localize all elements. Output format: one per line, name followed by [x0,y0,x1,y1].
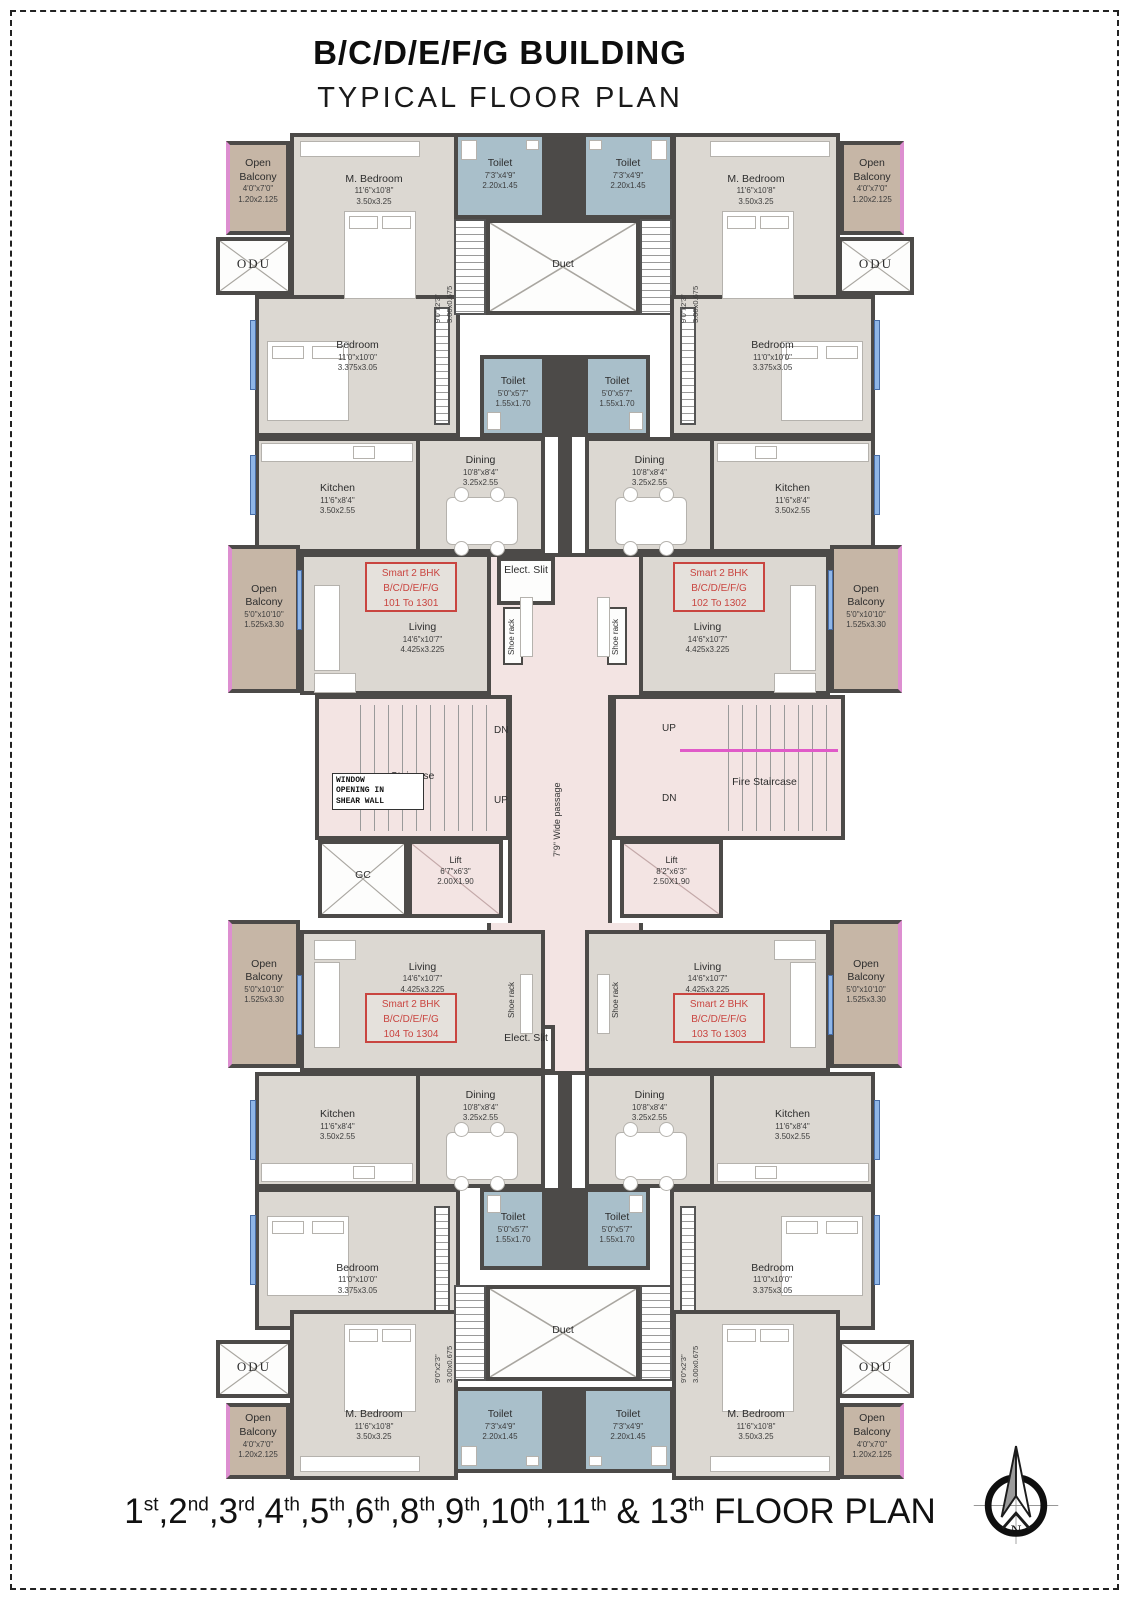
wall-spine [546,355,584,437]
dining-table [446,1132,518,1180]
room-toilet-small-top-left: Toilet5'0"x5'7"1.55x1.70 [480,355,546,437]
room-open-balcony-bottom-left: Open Balcony4'0"x7'0"1.20x2.125 [226,1403,290,1479]
corridor: 7'9" Wide passage [508,695,612,940]
room-open-balcony-mid-bottom-left: Open Balcony5'0"x10'10"1.525x3.30 [228,920,300,1068]
chair [623,541,638,556]
stair-treads [715,705,833,831]
room-gc: GC [318,840,408,918]
hob [755,446,777,459]
unit-label-104: Smart 2 BHKB/C/D/E/F/G104 To 1304 [365,993,457,1043]
window [874,1100,880,1160]
chair [659,541,674,556]
room-dining-top-right: Dining10'8"x8'4"3.25x2.55 [585,437,710,553]
stair-treads [347,705,497,831]
room-kitchen-bottom-right: Kitchen11'6"x8'4"3.50x2.55 [710,1072,875,1188]
kitchen-counter [261,443,413,462]
bed [344,211,416,299]
hob [353,446,375,459]
window [250,1100,256,1160]
north-label: N [968,1523,1064,1540]
chair [490,1176,505,1191]
basin [589,140,602,150]
wc [461,1446,477,1466]
bed [722,211,794,299]
room-toilet-bottom-left: Toilet7'3"x4'9"2.20x1.45 [454,1387,546,1473]
room-open-balcony-mid-bottom-right: Open Balcony5'0"x10'10"1.525x3.30 [830,920,902,1068]
floor-plan-page: { "header": { "title": "B/C/D/E/F/G BUIL… [0,0,1129,1600]
chair [454,1176,469,1191]
room-toilet-bottom-right: Toilet7'3"x4'9"2.20x1.45 [582,1387,674,1473]
room-lift-left: Lift6'7"x6'3"2.00X1.90 [408,840,503,918]
wall-spine [546,1188,584,1270]
niche-dimension-top-right: 9'0"x2'3"3.00x0.675 [678,223,702,323]
shear-wall-note: WINDOW OPENING IN SHEAR WALL [332,773,424,810]
room-odu-bottom-left: ODU [216,1340,292,1398]
basin [526,140,539,150]
window [874,455,880,515]
room-open-balcony-mid-right: Open Balcony5'0"x10'10"1.525x3.30 [830,545,902,693]
fire-stair-up-label: UP [662,723,676,734]
sofa-seat [314,673,356,693]
wall-spine [546,1387,582,1473]
window [828,975,833,1035]
room-dining-bottom-right: Dining10'8"x8'4"3.25x2.55 [585,1072,710,1188]
room-kitchen-bottom-left: Kitchen11'6"x8'4"3.50x2.55 [255,1072,420,1188]
chair [659,1122,674,1137]
niche-dimension-top-left: 9'0"x2'3"3.00x0.675 [432,223,456,323]
room-open-balcony-top-left: Open Balcony4'0"x7'0"1.20x2.125 [226,141,290,235]
window [250,320,256,390]
chair [659,487,674,502]
dining-table [615,1132,687,1180]
dresser [710,1456,830,1472]
sofa-seat [314,940,356,960]
unit-label-102: Smart 2 BHKB/C/D/E/F/G102 To 1302 [673,562,765,612]
unit-label-101: Smart 2 BHKB/C/D/E/F/G101 To 1301 [365,562,457,612]
chair [454,1122,469,1137]
window [297,975,302,1035]
room-odu-bottom-right: ODU [838,1340,914,1398]
wall-spine [558,1072,572,1188]
room-toilet-top-left: Toilet7'3"x4'9"2.20x1.45 [454,133,546,219]
window [250,455,256,515]
room-dining-bottom-left: Dining10'8"x8'4"3.25x2.55 [420,1072,545,1188]
window [874,1215,880,1285]
dining-table [446,497,518,545]
chair [659,1176,674,1191]
hob [353,1166,375,1179]
chair [623,1122,638,1137]
wc [629,412,643,430]
room-open-balcony-bottom-right: Open Balcony4'0"x7'0"1.20x2.125 [840,1403,904,1479]
chair [490,541,505,556]
stair-up-label: UP [494,795,508,806]
north-compass-icon: N [968,1442,1064,1550]
page-title: B/C/D/E/F/G BUILDING [0,34,1000,72]
fire-stair-railing-line [680,749,838,752]
room-toilet-small-bottom-left: Toilet5'0"x5'7"1.55x1.70 [480,1188,546,1270]
wall-spine [558,437,572,553]
room-fire-staircase: Fire Staircase [612,695,845,840]
basin [589,1456,602,1466]
wc [487,412,501,430]
wall-spine [546,133,582,219]
room-kitchen-top-left: Kitchen11'6"x8'4"3.50x2.55 [255,437,420,553]
bed [344,1324,416,1412]
unit-label-103: Smart 2 BHKB/C/D/E/F/G103 To 1303 [673,993,765,1043]
kitchen-counter [717,443,869,462]
wc [651,1446,667,1466]
dresser [300,141,420,157]
room-odu-top-left: ODU [216,237,292,295]
hob [755,1166,777,1179]
window [250,1215,256,1285]
window [874,320,880,390]
niche-dimension-bottom-left: 9'0"x2'3"3.00x0.675 [432,1283,456,1383]
chair [623,487,638,502]
dining-table [615,497,687,545]
kitchen-counter [717,1163,869,1182]
dresser [710,141,830,157]
room-duct-bottom: Duct [486,1285,640,1381]
room-lift-right: Lift8'2"x6'3"2.50X1.90 [620,840,723,918]
room-open-balcony-mid-left: Open Balcony5'0"x10'10"1.525x3.30 [228,545,300,693]
window [297,570,302,630]
niche-dimension-bottom-right: 9'0"x2'3"3.00x0.675 [678,1283,702,1383]
wardrobe-niche-right [640,219,672,315]
wardrobe-niche-bottom-right [640,1285,672,1381]
room-open-balcony-top-right: Open Balcony4'0"x7'0"1.20x2.125 [840,141,904,235]
room-kitchen-top-right: Kitchen11'6"x8'4"3.50x2.55 [710,437,875,553]
room-dining-top-left: Dining10'8"x8'4"3.25x2.55 [420,437,545,553]
floor-plan-caption: 1st,2nd,3rd,4th,5th,6th,8th,9th,10th,11t… [0,1492,1060,1532]
basin [526,1456,539,1466]
sofa-seat [774,940,816,960]
page-subtitle: TYPICAL FLOOR PLAN [0,82,1000,115]
wardrobe-niche-left [454,219,486,315]
room-toilet-top-right: Toilet7'3"x4'9"2.20x1.45 [582,133,674,219]
room-toilet-small-bottom-right: Toilet5'0"x5'7"1.55x1.70 [584,1188,650,1270]
room-duct-top: Duct [486,219,640,315]
fire-stair-dn-label: DN [662,793,676,804]
chair [490,1122,505,1137]
room-bedroom-bottom-left: Bedroom11'0"x10'0"3.375x3.05 [255,1188,460,1330]
chair [490,487,505,502]
bed [722,1324,794,1412]
room-toilet-small-top-right: Toilet5'0"x5'7"1.55x1.70 [584,355,650,437]
chair [623,1176,638,1191]
stair-dn-label: DN [494,725,508,736]
room-staircase: Staircase [315,695,510,840]
room-odu-top-right: ODU [838,237,914,295]
window [828,570,833,630]
floor-plan: Open Balcony4'0"x7'0"1.20x2.125 ODU M. B… [210,125,920,1480]
chair [454,487,469,502]
chair [454,541,469,556]
sofa-seat [774,673,816,693]
kitchen-counter [261,1163,413,1182]
room-bedroom-top-left: Bedroom11'0"x10'0"3.375x3.05 [255,295,460,437]
dresser [300,1456,420,1472]
wardrobe-niche-bottom-left [454,1285,486,1381]
